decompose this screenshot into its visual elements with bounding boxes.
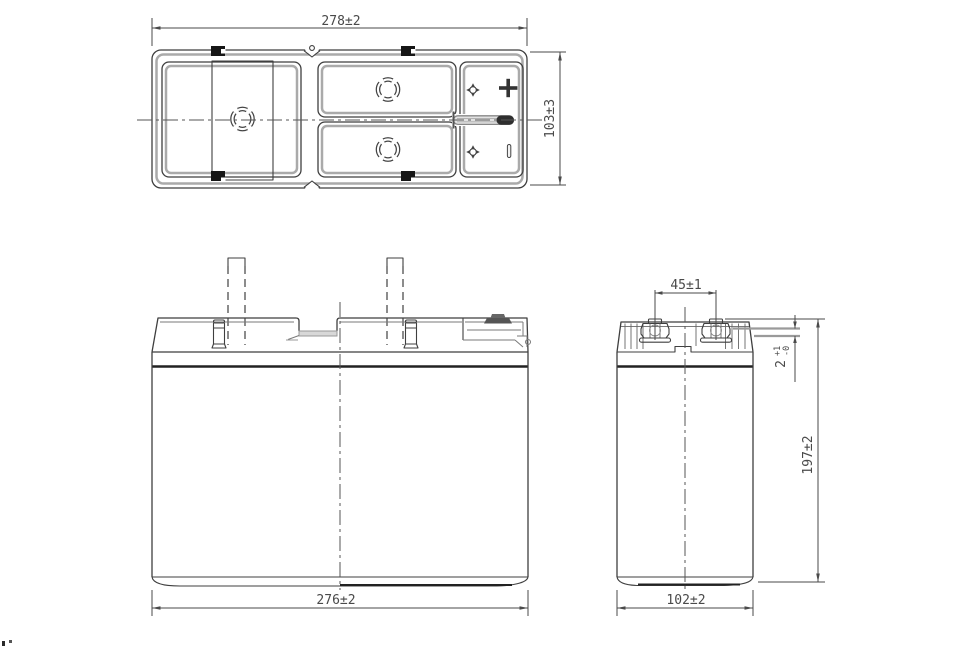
battery-dimension-drawing: 278±2 103±3 [0, 0, 974, 653]
dim-label-terminal-pitch: 45±1 [670, 278, 701, 293]
vent-plug-detail [463, 314, 531, 347]
terminal-locator-negative-icon [466, 145, 480, 159]
front-bolt-left [212, 320, 226, 348]
corner-artifact [2, 641, 5, 646]
corner-artifact [9, 640, 12, 643]
dim-label-overall-height: 197±2 [801, 435, 816, 474]
dim-label-protrusion-value: 2 [774, 360, 789, 368]
dim-side-width: 102±2 [617, 590, 753, 616]
side-view: 45±1 2 +1 -0 197±2 [600, 260, 870, 640]
dim-label-side-width: 102±2 [666, 593, 705, 608]
dim-terminal-pitch: 45±1 [655, 278, 716, 295]
dim-overall-height: 197±2 [725, 319, 825, 582]
vent-mark-upper [378, 79, 398, 99]
top-view: 278±2 103±3 [135, 10, 575, 220]
front-bolt-right [404, 320, 418, 348]
vent-mark-left [232, 109, 252, 129]
dim-label-top-width: 278±2 [321, 14, 360, 29]
dim-label-protrusion-minus: -0 [782, 346, 792, 356]
handle-tray [286, 331, 337, 340]
front-lid [152, 314, 531, 352]
positive-terminal-icon [499, 79, 517, 97]
terminal-post-left [228, 258, 245, 345]
terminal-post-right [387, 258, 403, 345]
dim-terminal-protrusion: 2 +1 -0 [733, 315, 800, 382]
vent-mark-lower [378, 139, 398, 159]
dim-label-front-width: 276±2 [316, 593, 355, 608]
front-view: 276±2 [140, 250, 560, 630]
dim-top-width: 278±2 [152, 14, 527, 46]
terminal-locator-positive-icon [466, 83, 480, 97]
dim-top-depth: 103±3 [530, 52, 566, 185]
dim-front-width: 276±2 [152, 590, 528, 616]
dim-label-top-depth: 103±3 [543, 99, 558, 138]
negative-terminal-icon [507, 145, 510, 158]
